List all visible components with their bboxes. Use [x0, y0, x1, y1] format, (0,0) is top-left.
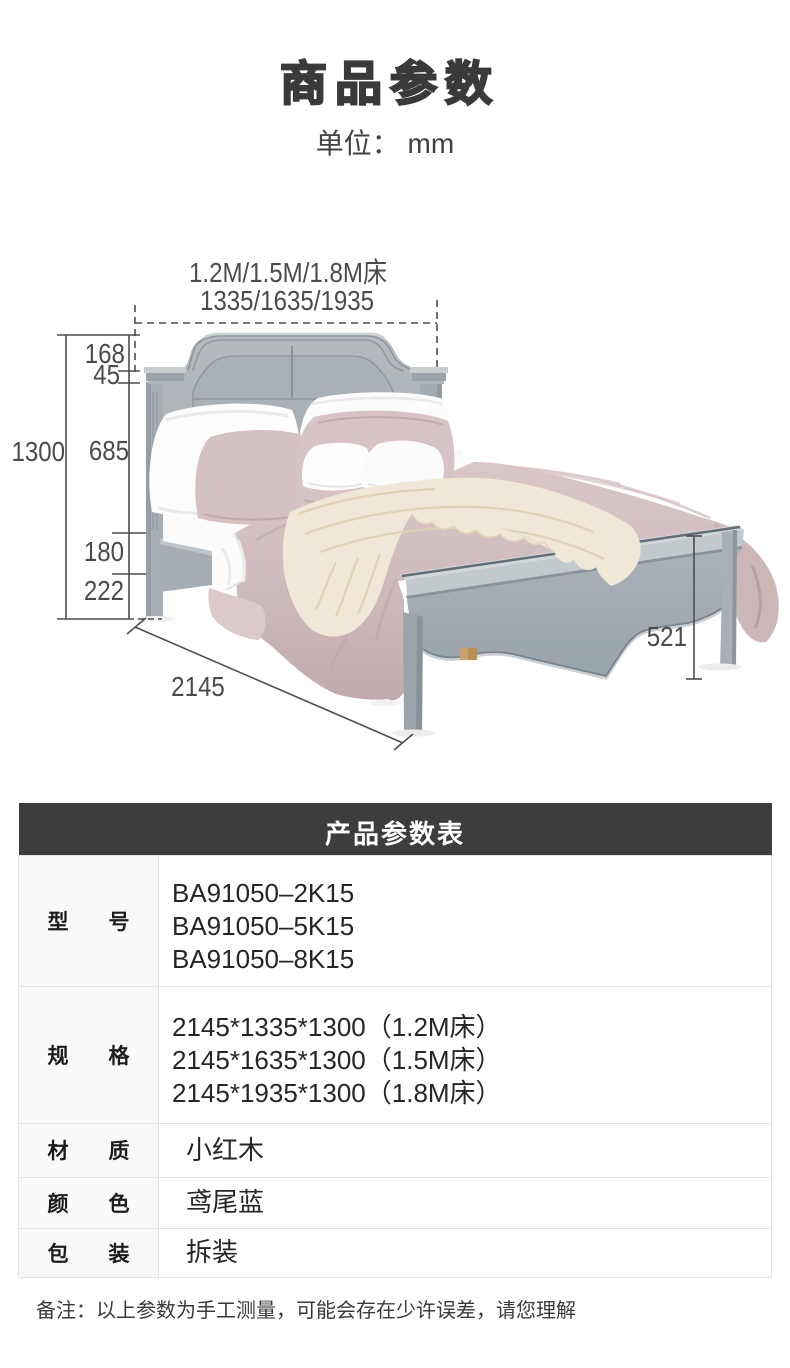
- svg-text:685: 685: [89, 434, 129, 466]
- svg-text:45: 45: [93, 358, 120, 390]
- svg-text:521: 521: [647, 620, 687, 652]
- svg-text:2145: 2145: [171, 670, 225, 702]
- svg-text:1300: 1300: [11, 435, 65, 467]
- svg-text:1335/1635/1935: 1335/1635/1935: [200, 284, 374, 316]
- svg-text:180: 180: [84, 535, 124, 567]
- svg-text:222: 222: [84, 574, 124, 606]
